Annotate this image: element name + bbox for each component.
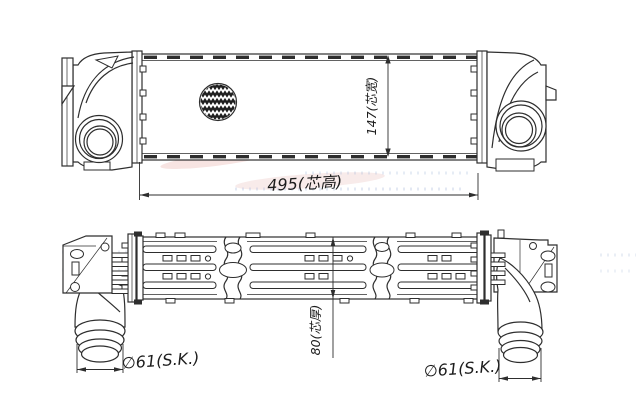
edge-tab xyxy=(166,299,175,304)
drawing-canvas: 147(芯宽) 495(芯高) xyxy=(0,0,639,418)
break-mark-2 xyxy=(367,237,397,299)
clip xyxy=(191,274,200,280)
clip xyxy=(305,274,314,280)
tube-slots xyxy=(143,246,480,289)
clip xyxy=(428,274,437,280)
edge-tab xyxy=(452,233,461,238)
bracket-hole xyxy=(541,251,555,261)
plate-tab xyxy=(471,257,477,262)
left-bracket xyxy=(63,236,112,293)
left-end-plate xyxy=(108,232,143,305)
plate-tick xyxy=(480,300,489,305)
arrowhead-left xyxy=(499,376,508,381)
edge-tab xyxy=(246,233,260,238)
tube-slot xyxy=(398,246,480,253)
plate-tab xyxy=(471,243,477,248)
header-tab xyxy=(140,138,146,144)
edge-tab xyxy=(464,299,473,304)
pipe-ring xyxy=(82,346,119,362)
edge-tab xyxy=(406,233,415,238)
comb-tooth xyxy=(491,262,505,267)
plate-tab xyxy=(471,271,477,276)
end-plate-2 xyxy=(137,236,143,300)
pipe-ring xyxy=(504,348,538,363)
left-pipe-flange-circles xyxy=(76,116,123,163)
comb-tooth xyxy=(491,280,505,285)
edge-tab xyxy=(175,233,185,238)
comb-tooth xyxy=(112,289,128,294)
arrowhead-left xyxy=(77,367,86,372)
core-face xyxy=(133,54,486,160)
break-lens xyxy=(375,243,389,252)
plate-tick xyxy=(480,231,489,236)
core-thickness-label: 80(芯厚) xyxy=(308,305,323,356)
clip xyxy=(163,256,172,262)
tube-slot xyxy=(143,282,216,289)
header-tab xyxy=(471,138,477,144)
bracket-hole xyxy=(530,243,537,250)
plate-tab xyxy=(122,243,128,248)
tube-slot xyxy=(250,282,366,289)
edge-tab xyxy=(340,299,349,304)
tank-step xyxy=(496,159,534,171)
clip xyxy=(456,274,465,280)
technical-drawing-svg: 147(芯宽) 495(芯高) xyxy=(0,0,639,418)
header-tab xyxy=(140,90,146,96)
clip xyxy=(319,256,328,262)
bottom-view: 80(芯厚) ∅61(S.K.) ∅61(S.K.) xyxy=(63,230,557,382)
edge-tab xyxy=(306,233,315,238)
break-lens xyxy=(370,263,394,277)
core-section xyxy=(135,233,483,303)
clip xyxy=(177,256,186,262)
comb-tooth xyxy=(491,253,505,258)
tube-slot xyxy=(250,246,366,253)
right-tank xyxy=(487,52,556,171)
bracket-top-tab xyxy=(498,230,504,238)
break-lens xyxy=(220,263,247,278)
clip xyxy=(428,256,437,262)
arrowhead-left xyxy=(140,193,149,198)
clip xyxy=(305,256,314,262)
break-lens xyxy=(225,243,241,253)
header-tab xyxy=(471,90,477,96)
header-tab xyxy=(140,66,146,72)
break-mark-1 xyxy=(217,237,247,299)
plate-tick xyxy=(134,300,142,305)
arrowhead-right xyxy=(469,193,478,198)
tank-step xyxy=(84,162,110,170)
header-tab xyxy=(471,114,477,120)
tank-flange xyxy=(62,58,73,166)
bracket-slot-hole xyxy=(545,264,552,277)
bracket-hole xyxy=(71,250,84,259)
clip xyxy=(442,274,451,280)
clip-rivet xyxy=(205,274,210,279)
comb-tooth xyxy=(491,271,505,276)
clip xyxy=(177,274,186,280)
header-tab xyxy=(471,66,477,72)
left-tank xyxy=(62,52,134,170)
clip xyxy=(442,256,451,262)
tube-slot xyxy=(143,264,216,271)
edge-tab xyxy=(156,233,165,238)
core-length-label: 495(芯高) xyxy=(267,172,343,195)
plate-tick xyxy=(134,232,142,237)
tank-tab xyxy=(546,86,556,100)
core-outline xyxy=(133,54,486,160)
bracket-hole xyxy=(101,243,109,251)
tube-slot xyxy=(398,264,480,271)
clip xyxy=(191,256,200,262)
top-view: 147(芯宽) 495(芯高) xyxy=(62,51,556,200)
clip-rivet xyxy=(347,256,352,261)
end-plate xyxy=(477,233,484,303)
tube-slot xyxy=(398,282,480,289)
edge-tab xyxy=(410,299,419,304)
bracket-slot-hole xyxy=(72,262,79,275)
bracket-hole xyxy=(71,283,80,292)
pipe-diameter-left-label: ∅61(S.K.) xyxy=(121,348,200,372)
overall-width-label: 147(芯宽) xyxy=(364,77,379,136)
clip xyxy=(163,274,172,280)
right-pipe-flange-circles xyxy=(496,101,546,151)
bracket-hole xyxy=(541,282,555,292)
tube-slot xyxy=(250,264,366,271)
header-tab xyxy=(140,114,146,120)
clip xyxy=(319,274,328,280)
clip xyxy=(333,256,342,262)
arrowhead-right xyxy=(532,376,541,381)
pipe-diameter-right-label: ∅61(S.K.) xyxy=(423,356,502,380)
clip-rivet xyxy=(205,256,210,261)
end-plate-2 xyxy=(485,235,491,301)
plate-tab xyxy=(471,285,477,290)
tube-slot xyxy=(143,246,216,253)
